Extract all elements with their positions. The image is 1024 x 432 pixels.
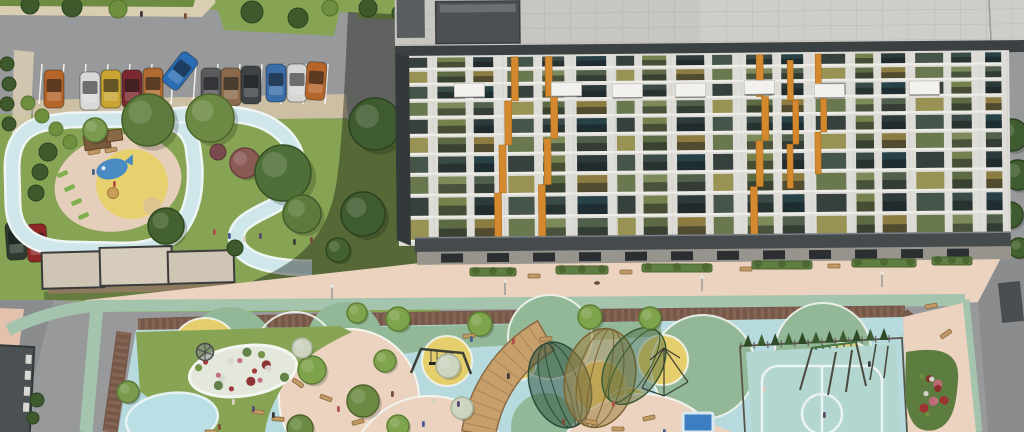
pavilion-roof-2: [100, 246, 173, 286]
flower-cluster: [265, 365, 272, 372]
flower-cluster: [929, 397, 938, 406]
tree-highlight: [120, 384, 130, 394]
window: [713, 117, 733, 131]
planter-shrub: [472, 267, 480, 275]
window: [915, 53, 943, 63]
storefront-door: [533, 253, 555, 262]
car: [241, 66, 261, 104]
person: [868, 361, 871, 367]
bush: [2, 77, 16, 91]
balcony-railing: [473, 62, 493, 68]
window: [714, 217, 734, 237]
person: [140, 11, 143, 17]
window: [713, 135, 733, 150]
orange-accent: [815, 132, 821, 174]
car-glass: [47, 79, 62, 92]
corner-building-window: [25, 355, 31, 364]
window: [617, 196, 635, 214]
flower-cluster: [915, 380, 922, 387]
white-awning: [454, 83, 484, 97]
balcony-railing: [857, 202, 875, 212]
bush: [30, 393, 44, 407]
tree-highlight: [153, 213, 169, 229]
window: [816, 173, 846, 190]
bush: [210, 144, 226, 160]
tree-highlight: [439, 357, 450, 368]
window: [618, 218, 636, 238]
car-roof: [224, 90, 238, 99]
bench: [528, 274, 540, 278]
bench: [540, 337, 552, 342]
planter-shrub: [854, 258, 862, 266]
balcony-railing: [952, 139, 972, 147]
car-roof: [290, 86, 304, 95]
person: [272, 412, 275, 418]
car: [44, 70, 64, 108]
tree-highlight: [356, 105, 379, 128]
balcony-railing: [985, 57, 1001, 63]
balcony-railing: [676, 74, 704, 80]
balcony-railing: [642, 90, 666, 97]
roof-block: [397, 0, 425, 38]
sage-path-left: [86, 306, 97, 432]
balcony-railing: [856, 140, 874, 148]
window: [713, 195, 733, 213]
balcony-railing: [882, 121, 906, 129]
planter-shrub: [578, 265, 586, 273]
window: [617, 101, 635, 114]
window: [916, 172, 944, 189]
balcony-railing: [577, 162, 607, 171]
bush: [21, 96, 35, 110]
tree-highlight: [234, 152, 248, 166]
storefront-door: [809, 250, 831, 259]
flower-cluster: [227, 357, 234, 364]
balcony-railing: [677, 142, 705, 151]
balcony-railing: [578, 204, 608, 214]
car: [266, 64, 286, 102]
balcony-railing: [643, 162, 667, 171]
balcony-railing: [576, 75, 606, 81]
window: [616, 56, 634, 66]
balcony-railing: [952, 121, 972, 129]
person: [337, 406, 340, 412]
balcony-railing: [855, 88, 873, 95]
balcony-railing: [856, 122, 874, 130]
planter-shrub: [962, 256, 970, 264]
tree-highlight: [192, 100, 214, 122]
window: [617, 175, 635, 192]
bush: [49, 122, 63, 136]
storefront-door: [625, 252, 647, 261]
white-awning: [612, 84, 642, 98]
planter-shrub: [673, 263, 681, 271]
planter-bed: [642, 263, 712, 272]
car-glass: [83, 81, 98, 94]
white-awning: [551, 82, 581, 96]
flower-cluster: [937, 403, 944, 410]
balcony-railing: [986, 121, 1002, 129]
balcony-railing: [677, 106, 705, 113]
person: [232, 399, 235, 405]
person: [457, 401, 460, 407]
balcony-railing: [438, 164, 466, 173]
balcony-railing: [438, 144, 466, 153]
bush: [241, 1, 263, 23]
planter-shrub: [644, 263, 652, 271]
person: [507, 373, 510, 379]
balcony-railing: [577, 143, 607, 152]
tree-highlight: [581, 308, 592, 319]
person: [612, 401, 615, 407]
carousel: [197, 344, 214, 361]
person: [512, 338, 515, 344]
car: [80, 72, 100, 110]
bench: [828, 264, 840, 268]
balcony-railing: [677, 123, 705, 131]
bush: [32, 164, 48, 180]
tree-highlight: [129, 101, 152, 124]
car-glass: [146, 77, 161, 90]
car-glass: [269, 73, 284, 86]
person: [763, 386, 766, 392]
balcony-railing: [883, 201, 907, 211]
lamp-head: [330, 284, 334, 288]
orange-accent: [550, 96, 557, 138]
planter-shrub: [778, 260, 786, 268]
orange-accent: [750, 187, 758, 241]
bush: [35, 109, 49, 123]
lamp-head: [700, 275, 704, 279]
window: [712, 84, 732, 96]
balcony-railing: [577, 107, 607, 114]
car-roof: [83, 94, 97, 103]
balcony-railing: [438, 184, 466, 194]
person: [562, 419, 565, 425]
car: [101, 70, 121, 108]
flower-cluster: [935, 365, 942, 372]
person: [92, 169, 95, 175]
window: [916, 115, 944, 129]
balcony-railing: [986, 103, 1002, 110]
balcony-railing: [952, 103, 972, 110]
balcony-railing: [437, 62, 465, 68]
planter-shrub: [506, 267, 514, 275]
balcony-railing: [856, 180, 874, 190]
tree-highlight: [471, 315, 482, 326]
balcony-railing: [677, 161, 705, 170]
balcony-railing: [856, 160, 874, 169]
bush: [227, 240, 243, 256]
planter-bed: [470, 267, 516, 276]
balcony-railing: [475, 205, 495, 215]
apartment-building: [395, 0, 1024, 265]
planter-shrub: [934, 256, 942, 264]
tree-highlight: [1012, 241, 1021, 250]
storefront-door: [901, 249, 923, 258]
white-awning: [744, 80, 774, 94]
balcony-railing: [544, 205, 566, 215]
balcony-railing: [474, 184, 494, 194]
balcony-railing: [986, 139, 1002, 147]
car-glass: [204, 77, 219, 90]
car-glass: [290, 73, 305, 86]
car-roof: [308, 84, 323, 94]
balcony-railing: [986, 179, 1002, 189]
planter-shrub: [754, 260, 762, 268]
white-awning: [909, 81, 939, 95]
balcony-railing: [881, 58, 905, 64]
planter-bed: [852, 258, 916, 267]
car-roof: [244, 88, 258, 97]
balcony-railing: [987, 200, 1003, 210]
bush: [2, 117, 16, 131]
window: [917, 215, 945, 235]
car-roof: [269, 86, 283, 95]
window: [713, 100, 733, 113]
person: [391, 391, 394, 397]
scene-root: [0, 0, 1024, 432]
car-roof: [47, 92, 61, 101]
balcony-railing: [642, 60, 666, 66]
flower-cluster: [923, 391, 928, 396]
balcony-railing: [882, 180, 906, 190]
balcony-railing: [438, 126, 466, 134]
orange-accent: [494, 193, 501, 243]
balcony-railing: [856, 104, 874, 111]
planter-shrub: [702, 263, 710, 271]
bench: [463, 334, 475, 339]
balcony-railing: [951, 71, 971, 77]
window: [816, 116, 846, 130]
car-glass: [244, 75, 259, 88]
orange-accent: [787, 60, 793, 100]
window: [712, 55, 732, 65]
bush: [288, 8, 308, 28]
tree-highlight: [295, 341, 304, 350]
balcony-railing: [474, 125, 494, 133]
balcony-railing: [986, 158, 1002, 167]
orange-accent: [538, 185, 546, 243]
bush: [62, 0, 82, 17]
tree-highlight: [642, 310, 652, 320]
bench: [620, 270, 632, 274]
flower-cluster: [237, 358, 242, 363]
storefront-door: [487, 253, 509, 262]
orange-accent: [756, 141, 763, 187]
animal-statue: [108, 188, 119, 199]
lamp-head: [880, 271, 884, 275]
flower-cluster: [919, 374, 924, 379]
orange-accent: [511, 57, 518, 101]
person: [823, 412, 826, 418]
balcony-railing: [985, 87, 1001, 94]
bush: [0, 97, 14, 111]
bush: [39, 143, 57, 161]
balcony-railing: [644, 204, 668, 214]
car: [305, 61, 328, 100]
balcony-railing: [952, 179, 972, 189]
window: [713, 174, 733, 191]
flower-cluster: [934, 385, 941, 392]
person: [293, 239, 296, 245]
planter-shrub: [558, 265, 566, 273]
person: [218, 424, 221, 430]
tree-highlight: [302, 360, 315, 373]
flower-cluster: [214, 381, 223, 390]
person: [228, 233, 231, 239]
window: [616, 70, 634, 81]
bush: [21, 0, 39, 14]
white-awning: [675, 83, 705, 97]
planter-bed: [752, 260, 812, 269]
storefront-door: [441, 253, 463, 262]
person: [213, 229, 216, 235]
car-roof: [9, 244, 24, 254]
orange-accent: [499, 145, 506, 193]
flower-cluster: [280, 373, 289, 382]
window: [816, 99, 846, 112]
balcony-railing: [643, 124, 667, 132]
corner-building-window: [23, 403, 29, 412]
person: [310, 237, 313, 243]
window: [617, 155, 635, 171]
window: [916, 133, 944, 148]
flower-cluster: [229, 386, 234, 391]
balcony-railing: [642, 74, 666, 80]
tree-highlight: [288, 200, 305, 217]
bush: [0, 57, 14, 71]
white-awning: [814, 84, 844, 98]
balcony-railing: [474, 108, 494, 115]
balcony-railing: [951, 57, 971, 63]
balcony-railing: [882, 140, 906, 148]
window: [508, 197, 534, 215]
storefront-door: [855, 249, 877, 258]
tree-highlight: [351, 389, 365, 403]
bush: [109, 0, 127, 18]
window: [915, 67, 943, 78]
flower-cluster: [252, 368, 257, 373]
balcony-railing: [577, 124, 607, 132]
balcony-railing: [577, 183, 607, 193]
balcony-railing: [676, 60, 704, 66]
bench: [612, 427, 624, 431]
planter-bed: [556, 265, 608, 274]
tree-highlight: [329, 241, 340, 252]
window: [712, 69, 732, 80]
bush: [27, 412, 39, 424]
planter-shrub: [489, 267, 497, 275]
planter-shrub: [802, 260, 810, 268]
orange-accent: [793, 100, 799, 144]
dog: [594, 281, 600, 285]
planter-shrub: [948, 256, 956, 264]
bush: [28, 185, 44, 201]
flower-cluster: [242, 348, 251, 357]
car-glass: [104, 79, 119, 92]
storefront-door: [717, 251, 739, 260]
tree-highlight: [377, 353, 387, 363]
tree-highlight: [390, 418, 400, 428]
balcony-railing: [678, 203, 706, 213]
corner-building-window: [24, 387, 30, 396]
aerial-render: [0, 0, 1024, 432]
orange-accent: [544, 139, 551, 185]
bush: [359, 0, 377, 17]
balcony-railing: [643, 106, 667, 113]
window: [816, 194, 846, 212]
balcony-railing: [985, 71, 1001, 77]
tree-highlight: [86, 121, 97, 132]
person: [422, 421, 425, 427]
window: [817, 216, 847, 236]
balcony-railing: [474, 144, 494, 152]
person: [184, 13, 187, 19]
balcony-railing: [643, 142, 667, 150]
storefront-door: [579, 252, 601, 261]
balcony-railing: [882, 104, 906, 111]
planter-shrub: [880, 258, 888, 266]
window: [617, 136, 635, 151]
penthouse-highlight: [440, 4, 516, 13]
balcony-railing: [437, 76, 465, 82]
person: [252, 406, 255, 412]
orange-accent: [762, 96, 769, 140]
person: [243, 236, 246, 242]
balcony-railing: [855, 58, 873, 64]
building-side-wall: [395, 54, 411, 246]
window: [916, 152, 944, 168]
planter-bed: [932, 256, 972, 265]
balcony-railing: [473, 76, 493, 82]
person: [259, 233, 262, 239]
balcony-railing: [439, 205, 467, 215]
orange-accent: [787, 144, 793, 188]
balcony-railing: [952, 159, 972, 168]
tree-highlight: [262, 152, 287, 177]
window: [713, 154, 733, 170]
storefront-door: [763, 250, 785, 259]
balcony-railing: [951, 87, 971, 94]
tree-highlight: [350, 306, 359, 315]
window: [508, 156, 534, 172]
balcony-railing: [474, 163, 494, 172]
balcony-railing: [643, 182, 667, 192]
car: [287, 64, 307, 102]
tree-highlight: [290, 418, 302, 430]
bush: [63, 135, 77, 149]
car-roof: [104, 92, 118, 101]
flower-cluster: [257, 378, 262, 383]
window: [916, 98, 944, 111]
bush: [322, 0, 338, 16]
car-glass: [308, 71, 324, 85]
planter-shrub: [598, 265, 606, 273]
balcony-railing: [576, 61, 606, 67]
window: [916, 193, 944, 211]
planter-shrub: [906, 258, 914, 266]
corner-building-window: [25, 371, 31, 380]
window: [509, 219, 535, 239]
storefront-door: [671, 251, 693, 260]
flower-cluster: [246, 377, 255, 386]
road-structure: [998, 281, 1024, 323]
balcony-railing: [881, 88, 905, 95]
balcony-railing: [677, 182, 705, 192]
person: [432, 398, 435, 404]
sports-court: [746, 344, 901, 432]
